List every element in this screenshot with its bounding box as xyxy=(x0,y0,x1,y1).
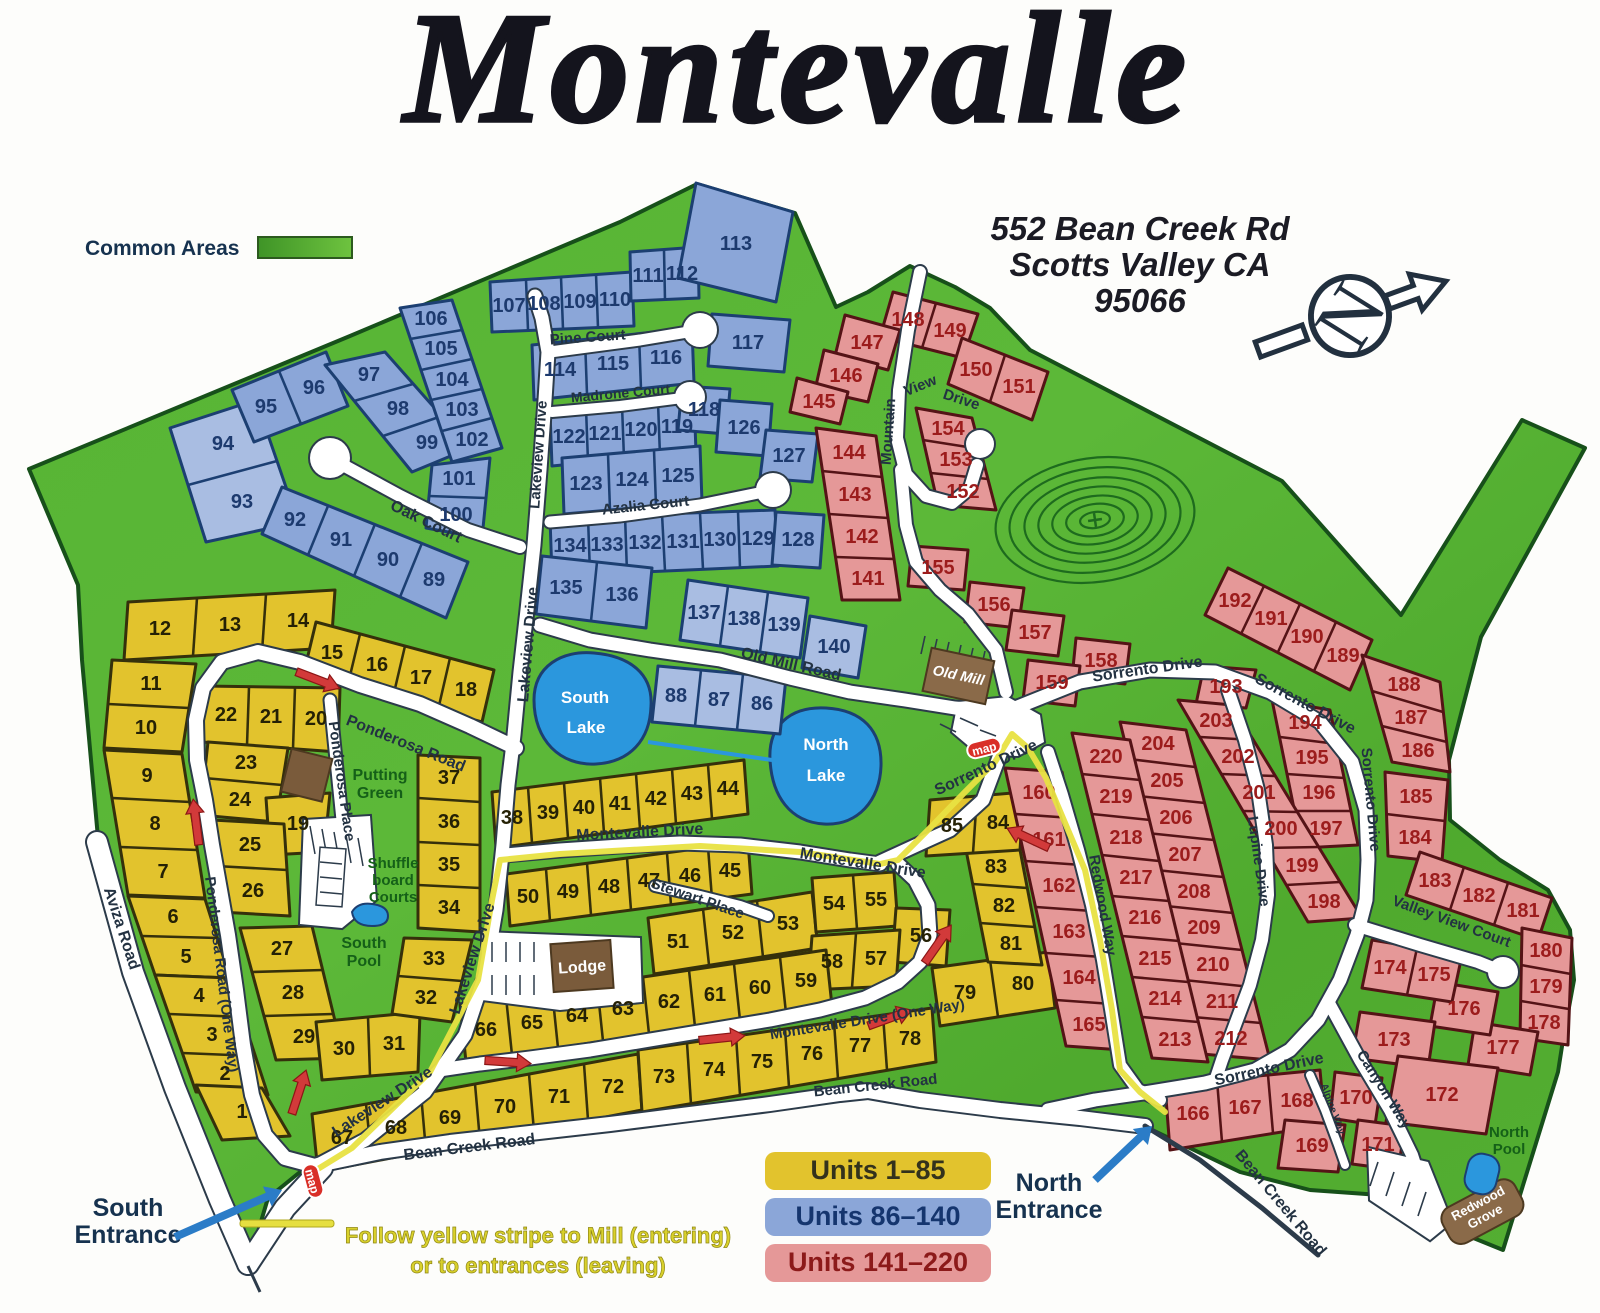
svg-text:199: 199 xyxy=(1285,855,1318,877)
svg-text:Montevalle: Montevalle xyxy=(401,0,1192,156)
svg-text:207: 207 xyxy=(1168,844,1201,866)
svg-text:36: 36 xyxy=(438,811,460,833)
svg-text:South: South xyxy=(93,1194,164,1222)
svg-text:99: 99 xyxy=(416,432,438,454)
svg-text:9: 9 xyxy=(141,765,152,787)
svg-text:South: South xyxy=(561,688,609,707)
svg-text:134: 134 xyxy=(553,535,587,557)
svg-text:16: 16 xyxy=(366,654,388,676)
svg-text:190: 190 xyxy=(1290,626,1323,648)
svg-text:111: 111 xyxy=(632,265,663,287)
svg-text:98: 98 xyxy=(387,398,409,420)
svg-text:87: 87 xyxy=(708,689,730,711)
svg-text:151: 151 xyxy=(1002,376,1035,398)
svg-text:95: 95 xyxy=(255,396,277,418)
svg-text:184: 184 xyxy=(1398,827,1432,849)
svg-text:132: 132 xyxy=(628,532,661,554)
svg-text:173: 173 xyxy=(1377,1029,1410,1051)
svg-text:78: 78 xyxy=(899,1028,921,1050)
svg-text:143: 143 xyxy=(838,484,871,506)
svg-text:54: 54 xyxy=(823,893,846,915)
svg-text:North: North xyxy=(803,735,848,754)
svg-text:168: 168 xyxy=(1280,1090,1313,1112)
svg-text:219: 219 xyxy=(1099,786,1132,808)
svg-text:123: 123 xyxy=(569,473,602,495)
svg-text:31: 31 xyxy=(383,1033,405,1055)
svg-text:101: 101 xyxy=(442,468,475,490)
svg-text:or to entrances (leaving): or to entrances (leaving) xyxy=(410,1253,666,1278)
svg-text:213: 213 xyxy=(1158,1029,1191,1051)
svg-text:24: 24 xyxy=(229,789,252,811)
svg-text:180: 180 xyxy=(1529,940,1562,962)
svg-text:20: 20 xyxy=(305,708,327,730)
svg-text:152: 152 xyxy=(946,481,979,503)
svg-text:205: 205 xyxy=(1150,770,1183,792)
svg-text:55: 55 xyxy=(865,889,887,911)
svg-text:122: 122 xyxy=(552,426,585,448)
svg-text:94: 94 xyxy=(212,433,235,455)
svg-text:Shuffle: Shuffle xyxy=(368,855,419,872)
svg-text:176: 176 xyxy=(1447,998,1480,1020)
svg-text:15: 15 xyxy=(321,642,343,664)
svg-text:150: 150 xyxy=(959,359,992,381)
svg-text:Lake: Lake xyxy=(567,718,606,737)
svg-text:172: 172 xyxy=(1425,1084,1458,1106)
svg-text:198: 198 xyxy=(1307,891,1340,913)
svg-text:8: 8 xyxy=(149,813,160,835)
svg-text:144: 144 xyxy=(832,442,866,464)
svg-text:215: 215 xyxy=(1138,948,1171,970)
svg-text:197: 197 xyxy=(1309,818,1342,840)
svg-text:95066: 95066 xyxy=(1094,282,1186,319)
svg-text:166: 166 xyxy=(1176,1103,1209,1125)
svg-text:112: 112 xyxy=(666,263,698,285)
svg-text:10: 10 xyxy=(135,717,157,739)
svg-text:89: 89 xyxy=(423,569,445,591)
svg-text:26: 26 xyxy=(242,880,264,902)
svg-text:40: 40 xyxy=(573,797,595,819)
svg-text:Lake: Lake xyxy=(807,766,846,785)
svg-text:60: 60 xyxy=(749,977,771,999)
svg-text:70: 70 xyxy=(494,1096,516,1118)
svg-text:220: 220 xyxy=(1089,746,1122,768)
svg-text:105: 105 xyxy=(424,338,457,360)
svg-text:187: 187 xyxy=(1394,707,1427,729)
svg-text:North: North xyxy=(1489,1124,1529,1141)
svg-text:Scotts Valley CA: Scotts Valley CA xyxy=(1009,246,1270,283)
svg-text:116: 116 xyxy=(650,347,682,369)
svg-text:186: 186 xyxy=(1401,740,1434,762)
svg-text:107: 107 xyxy=(492,295,525,317)
svg-text:179: 179 xyxy=(1529,976,1562,998)
svg-text:96: 96 xyxy=(303,377,325,399)
svg-text:113: 113 xyxy=(720,233,752,255)
svg-text:103: 103 xyxy=(445,399,478,421)
svg-text:216: 216 xyxy=(1128,907,1161,929)
svg-text:130: 130 xyxy=(703,529,736,551)
svg-text:58: 58 xyxy=(821,951,843,973)
svg-text:27: 27 xyxy=(271,938,293,960)
svg-text:196: 196 xyxy=(1302,782,1335,804)
svg-text:106: 106 xyxy=(414,308,447,330)
svg-text:Common Areas: Common Areas xyxy=(85,237,239,260)
svg-text:42: 42 xyxy=(645,788,667,810)
svg-text:191: 191 xyxy=(1254,608,1287,630)
svg-text:174: 174 xyxy=(1373,957,1407,979)
svg-text:157: 157 xyxy=(1018,622,1051,644)
svg-text:Entrance: Entrance xyxy=(75,1221,182,1249)
svg-text:120: 120 xyxy=(624,419,657,441)
svg-text:200: 200 xyxy=(1264,818,1297,840)
svg-text:86: 86 xyxy=(751,693,773,715)
svg-text:Units 1–85: Units 1–85 xyxy=(810,1155,945,1185)
svg-text:3: 3 xyxy=(206,1024,217,1046)
svg-text:147: 147 xyxy=(850,332,883,354)
svg-text:Units 141–220: Units 141–220 xyxy=(788,1247,968,1277)
svg-text:214: 214 xyxy=(1148,988,1182,1010)
svg-text:32: 32 xyxy=(415,987,437,1009)
svg-text:85: 85 xyxy=(941,815,963,837)
svg-text:118: 118 xyxy=(688,399,720,421)
svg-text:6: 6 xyxy=(167,906,178,928)
svg-text:193: 193 xyxy=(1209,676,1242,698)
svg-text:39: 39 xyxy=(537,802,559,824)
svg-text:28: 28 xyxy=(282,982,304,1004)
svg-text:61: 61 xyxy=(704,984,726,1006)
svg-text:76: 76 xyxy=(801,1043,823,1065)
svg-text:82: 82 xyxy=(993,895,1015,917)
svg-text:125: 125 xyxy=(661,465,694,487)
svg-text:181: 181 xyxy=(1506,900,1539,922)
svg-text:182: 182 xyxy=(1462,885,1495,907)
svg-text:Units 86–140: Units 86–140 xyxy=(795,1201,960,1231)
svg-text:142: 142 xyxy=(845,526,878,548)
svg-text:71: 71 xyxy=(548,1086,570,1108)
svg-text:62: 62 xyxy=(658,991,680,1013)
svg-text:212: 212 xyxy=(1214,1028,1247,1050)
svg-text:56: 56 xyxy=(910,925,932,947)
svg-text:73: 73 xyxy=(653,1066,675,1088)
svg-text:115: 115 xyxy=(597,353,629,375)
svg-text:192: 192 xyxy=(1218,590,1251,612)
svg-text:131: 131 xyxy=(666,531,699,553)
svg-text:110: 110 xyxy=(599,289,631,311)
svg-text:114: 114 xyxy=(544,359,577,381)
svg-text:204: 204 xyxy=(1141,733,1175,755)
svg-text:77: 77 xyxy=(849,1035,871,1057)
svg-text:23: 23 xyxy=(235,752,257,774)
svg-text:35: 35 xyxy=(438,854,460,876)
svg-text:North: North xyxy=(1016,1169,1083,1197)
svg-text:137: 137 xyxy=(687,602,720,624)
svg-text:129: 129 xyxy=(741,528,774,550)
svg-text:159: 159 xyxy=(1035,672,1068,694)
svg-text:145: 145 xyxy=(802,391,835,413)
svg-text:127: 127 xyxy=(772,445,805,467)
svg-text:121: 121 xyxy=(588,423,621,445)
svg-text:217: 217 xyxy=(1119,867,1152,889)
svg-text:146: 146 xyxy=(829,365,862,387)
svg-text:218: 218 xyxy=(1109,827,1142,849)
svg-text:93: 93 xyxy=(231,491,253,513)
svg-text:133: 133 xyxy=(590,534,623,556)
svg-text:69: 69 xyxy=(439,1107,461,1129)
svg-text:153: 153 xyxy=(939,449,972,471)
svg-text:104: 104 xyxy=(435,369,469,391)
svg-text:167: 167 xyxy=(1228,1097,1261,1119)
svg-text:64: 64 xyxy=(566,1005,589,1027)
svg-text:59: 59 xyxy=(795,970,817,992)
svg-text:29: 29 xyxy=(293,1026,315,1048)
svg-text:Putting: Putting xyxy=(352,767,407,784)
svg-text:117: 117 xyxy=(732,332,764,354)
svg-text:149: 149 xyxy=(933,320,966,342)
svg-text:Green: Green xyxy=(357,785,403,802)
svg-text:43: 43 xyxy=(681,783,703,805)
svg-text:25: 25 xyxy=(239,834,261,856)
svg-text:13: 13 xyxy=(219,614,241,636)
svg-text:81: 81 xyxy=(1000,933,1022,955)
svg-text:41: 41 xyxy=(609,793,631,815)
svg-text:189: 189 xyxy=(1326,645,1359,667)
svg-text:162: 162 xyxy=(1042,875,1075,897)
svg-text:209: 209 xyxy=(1187,917,1220,939)
svg-text:45: 45 xyxy=(719,860,741,882)
svg-text:109: 109 xyxy=(563,291,596,313)
svg-text:Pool: Pool xyxy=(1493,1141,1526,1158)
svg-text:170: 170 xyxy=(1339,1087,1372,1109)
svg-text:11: 11 xyxy=(140,673,161,695)
svg-text:188: 188 xyxy=(1387,674,1420,696)
svg-text:1: 1 xyxy=(236,1101,247,1123)
svg-text:72: 72 xyxy=(602,1076,624,1098)
svg-text:Lodge: Lodge xyxy=(558,957,607,977)
svg-text:154: 154 xyxy=(931,418,965,440)
svg-text:128: 128 xyxy=(781,529,814,551)
svg-text:97: 97 xyxy=(358,364,380,386)
svg-text:84: 84 xyxy=(987,812,1010,834)
svg-text:66: 66 xyxy=(475,1019,497,1041)
svg-text:4: 4 xyxy=(193,985,205,1007)
svg-text:155: 155 xyxy=(921,557,954,579)
svg-text:164: 164 xyxy=(1062,967,1096,989)
svg-text:552 Bean Creek Rd: 552 Bean Creek Rd xyxy=(991,210,1291,247)
svg-text:178: 178 xyxy=(1527,1012,1560,1034)
svg-text:74: 74 xyxy=(703,1059,726,1081)
svg-text:30: 30 xyxy=(333,1038,355,1060)
svg-text:126: 126 xyxy=(727,417,760,439)
svg-text:53: 53 xyxy=(777,913,799,935)
svg-text:202: 202 xyxy=(1221,746,1254,768)
svg-text:135: 135 xyxy=(549,577,582,599)
svg-text:Follow yellow stripe to Mill (: Follow yellow stripe to Mill (entering) xyxy=(345,1223,731,1248)
svg-text:49: 49 xyxy=(557,881,579,903)
svg-text:203: 203 xyxy=(1199,710,1232,732)
svg-text:195: 195 xyxy=(1295,747,1328,769)
svg-text:90: 90 xyxy=(377,549,399,571)
svg-text:board: board xyxy=(372,872,414,889)
svg-text:136: 136 xyxy=(605,584,638,606)
svg-text:156: 156 xyxy=(977,594,1010,616)
svg-text:22: 22 xyxy=(215,704,237,726)
svg-text:7: 7 xyxy=(157,861,168,883)
svg-text:21: 21 xyxy=(260,706,282,728)
svg-text:177: 177 xyxy=(1486,1037,1519,1059)
svg-text:38: 38 xyxy=(501,807,523,829)
svg-text:210: 210 xyxy=(1196,954,1229,976)
svg-text:17: 17 xyxy=(410,667,432,689)
svg-text:211: 211 xyxy=(1206,991,1238,1013)
svg-text:183: 183 xyxy=(1418,870,1451,892)
svg-text:80: 80 xyxy=(1012,973,1034,995)
svg-text:206: 206 xyxy=(1159,807,1192,829)
svg-text:18: 18 xyxy=(455,679,477,701)
svg-text:140: 140 xyxy=(817,636,850,658)
svg-text:14: 14 xyxy=(287,610,310,632)
svg-text:34: 34 xyxy=(438,897,461,919)
svg-text:175: 175 xyxy=(1417,964,1450,986)
svg-text:48: 48 xyxy=(598,876,620,898)
svg-text:169: 169 xyxy=(1295,1135,1328,1157)
svg-text:139: 139 xyxy=(767,614,800,636)
svg-text:165: 165 xyxy=(1072,1014,1105,1036)
svg-text:124: 124 xyxy=(615,469,649,491)
svg-text:51: 51 xyxy=(667,931,689,953)
svg-text:57: 57 xyxy=(865,948,887,970)
svg-text:163: 163 xyxy=(1052,921,1085,943)
svg-text:Pool: Pool xyxy=(347,953,382,970)
svg-text:5: 5 xyxy=(180,946,191,968)
svg-text:88: 88 xyxy=(665,685,687,707)
svg-text:108: 108 xyxy=(527,293,560,315)
svg-text:65: 65 xyxy=(521,1012,543,1034)
svg-text:102: 102 xyxy=(455,429,488,451)
svg-text:171: 171 xyxy=(1361,1134,1394,1156)
svg-text:92: 92 xyxy=(284,509,306,531)
svg-text:185: 185 xyxy=(1399,786,1432,808)
svg-text:208: 208 xyxy=(1177,881,1210,903)
svg-text:South: South xyxy=(341,935,386,952)
svg-text:201: 201 xyxy=(1242,782,1275,804)
svg-text:44: 44 xyxy=(717,778,740,800)
svg-text:75: 75 xyxy=(751,1051,773,1073)
svg-text:141: 141 xyxy=(851,568,884,590)
svg-text:63: 63 xyxy=(612,998,634,1020)
svg-text:12: 12 xyxy=(149,618,171,640)
svg-text:52: 52 xyxy=(722,922,744,944)
svg-text:19: 19 xyxy=(287,813,309,835)
svg-text:Entrance: Entrance xyxy=(996,1196,1103,1224)
svg-text:83: 83 xyxy=(985,856,1007,878)
svg-text:33: 33 xyxy=(423,948,445,970)
svg-text:Courts: Courts xyxy=(369,889,417,906)
svg-text:138: 138 xyxy=(727,608,760,630)
svg-text:91: 91 xyxy=(330,529,352,551)
svg-text:68: 68 xyxy=(385,1117,407,1139)
svg-text:50: 50 xyxy=(517,886,539,908)
svg-text:148: 148 xyxy=(891,309,924,331)
